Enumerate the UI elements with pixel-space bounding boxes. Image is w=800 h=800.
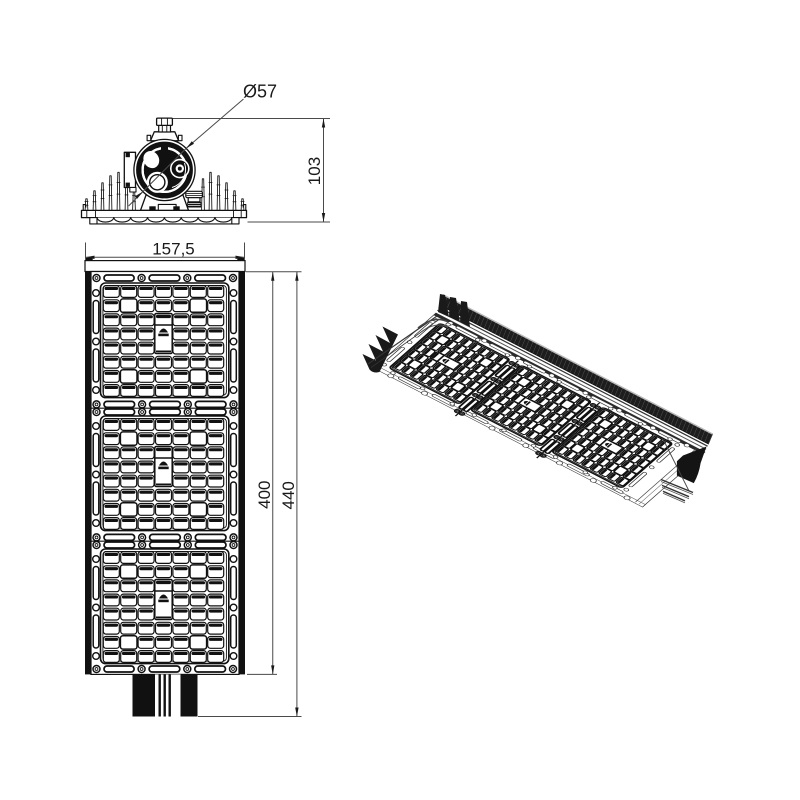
svg-text:Ø57: Ø57 [243, 82, 277, 102]
svg-text:400: 400 [255, 481, 274, 509]
svg-text:103: 103 [305, 157, 324, 185]
svg-text:157,5: 157,5 [152, 240, 195, 259]
svg-text:440: 440 [279, 481, 298, 509]
